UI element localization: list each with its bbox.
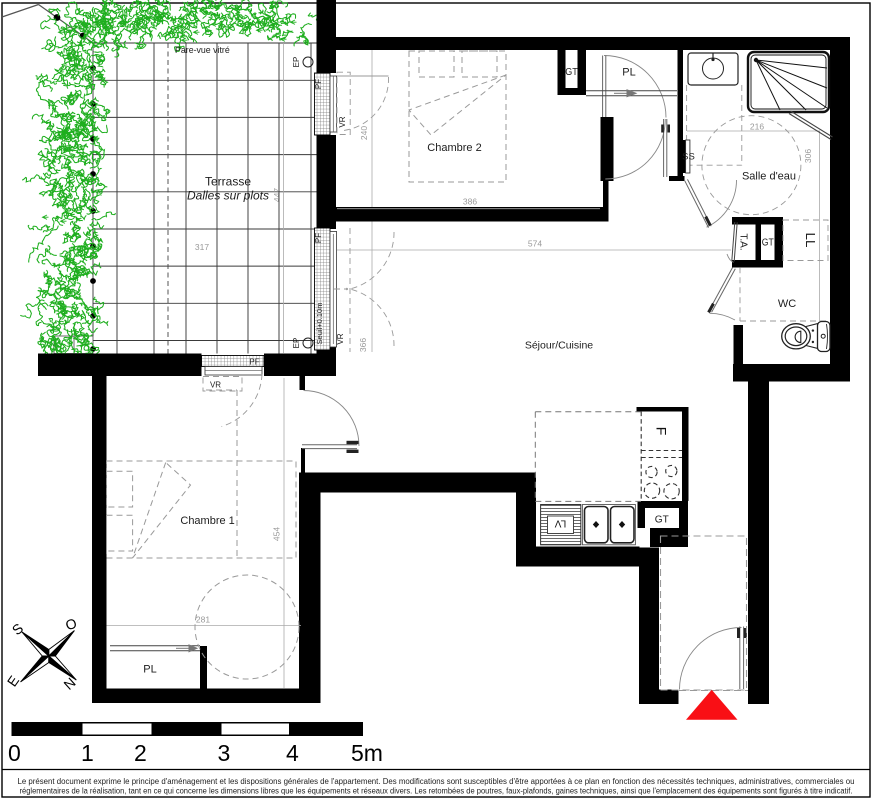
svg-text:Pare-vue vitré: Pare-vue vitré [175, 45, 230, 55]
svg-text:GT: GT [655, 514, 670, 526]
svg-text:574: 574 [528, 239, 542, 249]
svg-text:454: 454 [272, 527, 282, 541]
svg-text:306: 306 [803, 149, 813, 163]
svg-text:5m: 5m [351, 740, 383, 766]
svg-text:0: 0 [8, 740, 21, 766]
svg-text:PF: PF [314, 79, 323, 89]
svg-text:LV: LV [554, 518, 566, 529]
svg-text:2: 2 [134, 740, 147, 766]
svg-text:F: F [654, 427, 670, 436]
svg-text:281: 281 [196, 615, 210, 625]
svg-text:240: 240 [359, 126, 369, 140]
svg-text:Chambre 2: Chambre 2 [427, 142, 481, 154]
svg-text:LL: LL [803, 233, 818, 248]
svg-text:386: 386 [463, 197, 477, 207]
svg-text:3: 3 [218, 740, 231, 766]
svg-text:447: 447 [272, 188, 282, 202]
svg-text:Terrasse: Terrasse [205, 175, 251, 189]
svg-text:4: 4 [286, 740, 299, 766]
svg-text:317: 317 [195, 242, 209, 252]
svg-text:PL: PL [143, 664, 156, 676]
svg-text:T.A.: T.A. [738, 233, 749, 250]
svg-text:EP: EP [292, 338, 301, 349]
svg-text:réglementaires de la réalisati: réglementaires de la réalisation, tant e… [20, 787, 853, 796]
svg-text:PL: PL [622, 67, 635, 79]
svg-text:Seuil+0.10m: Seuil+0.10m [315, 303, 324, 345]
svg-text:1: 1 [81, 740, 94, 766]
svg-text:EP: EP [292, 57, 301, 68]
svg-text:GT: GT [565, 66, 578, 78]
svg-text:Le présent document exprime le: Le présent document exprime le principe … [18, 777, 855, 786]
svg-text:VR: VR [336, 333, 345, 344]
svg-text:SS: SS [682, 152, 695, 163]
svg-text:WC: WC [778, 298, 796, 310]
svg-text:Dalles sur plots: Dalles sur plots [187, 189, 269, 203]
svg-text:Séjour/Cuisine: Séjour/Cuisine [525, 340, 593, 352]
svg-text:Chambre 1: Chambre 1 [180, 515, 234, 527]
svg-text:366: 366 [358, 338, 368, 352]
svg-text:VR: VR [338, 116, 347, 127]
svg-text:VR: VR [210, 381, 221, 390]
svg-text:GT: GT [762, 238, 774, 249]
svg-text:216: 216 [750, 122, 764, 132]
svg-text:Salle d'eau: Salle d'eau [742, 171, 796, 183]
svg-text:PF: PF [249, 358, 259, 367]
svg-text:PF: PF [314, 233, 323, 243]
